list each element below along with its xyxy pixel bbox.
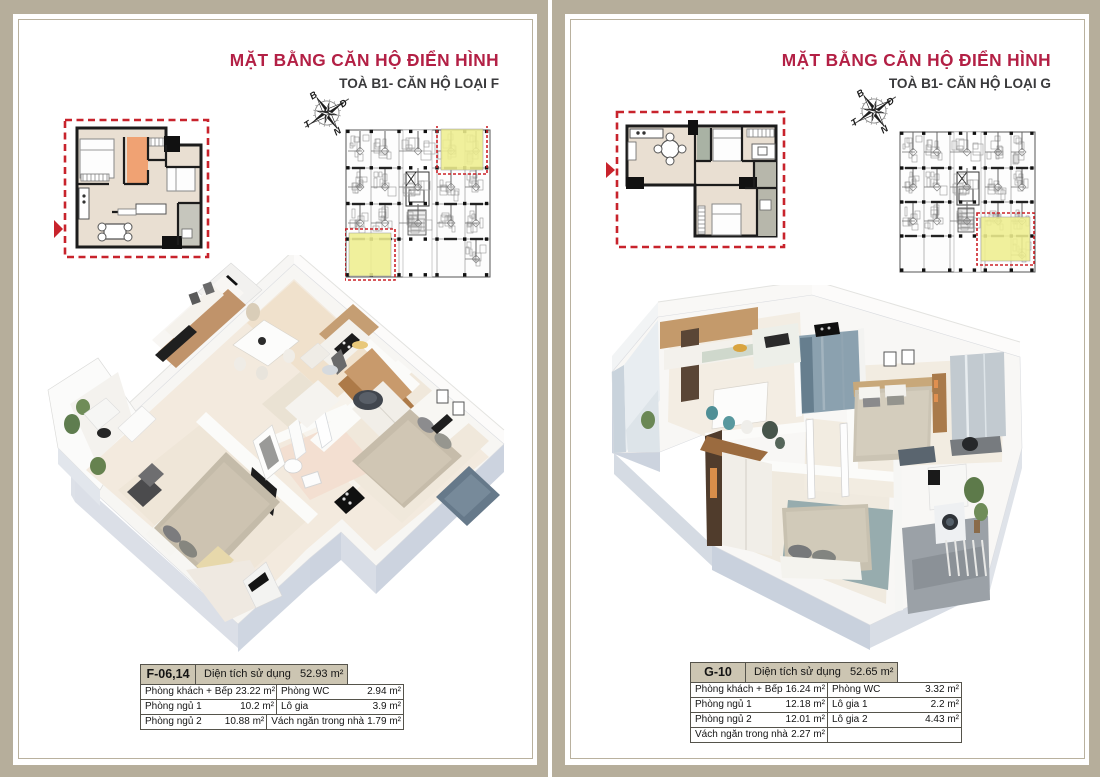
svg-text:T: T	[849, 116, 861, 129]
svg-text:N: N	[332, 125, 345, 139]
svg-text:N: N	[879, 123, 892, 137]
svg-text:T: T	[302, 118, 314, 131]
